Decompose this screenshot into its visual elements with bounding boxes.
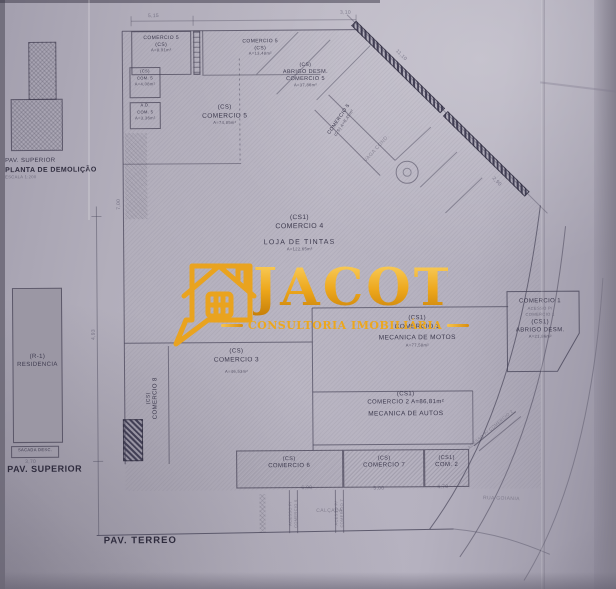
stair-strip <box>193 31 200 75</box>
label-comercio-1-abrigo: COMERCIO 1 ACESSO P/ COMERCIO 1 (CS1) AB… <box>508 298 572 341</box>
label-com5-small-1: (CS) COM. 5 A=4,08m² <box>129 69 160 89</box>
dim-top-right: 3,10 <box>340 10 351 16</box>
room-line: COM. 5 <box>132 76 157 82</box>
tagline-right-bar <box>447 324 469 327</box>
label-comercio-2: (CS1) COMERCIO 2 A=86,81m² MECANICA DE A… <box>331 391 481 419</box>
label-comercio-4: (CS1) COMERCIO 4 LOJA DE TINTAS A=122,65… <box>239 214 359 254</box>
label-comercio-5a: COMERCIO 5 (CS) A=8,91m² <box>131 35 191 55</box>
photographed-demolition-plan: PAV. SUPERIOR PLANTA DE DEMOLIÇÃO ESCALA… <box>0 0 616 589</box>
room-line: COMERCIO 7 <box>347 462 421 470</box>
upper-plan-caption: PAV. SUPERIOR PLANTA DE DEMOLIÇÃO ESCALA… <box>5 157 125 181</box>
room-line: COM. 2 <box>425 462 468 470</box>
label-comercio-3: (CS) COMERCIO 3 A=46,53m² <box>198 348 274 376</box>
label-sacada: SACADA DESC. <box>15 448 54 454</box>
label-acesso-comercio-6: ACESSO P/ COMERCIO 6 <box>288 490 299 538</box>
label-comercio-5b: COMERCIO 5 (CS) A=13,48m² <box>210 38 310 58</box>
room-line: LOJA DE TINTAS <box>240 237 360 247</box>
jacot-tagline-row: CONSULTORIA IMOBILIÁRIA <box>221 319 469 332</box>
dark-stair-block <box>123 419 143 461</box>
dim-walk-a: 6,90 <box>301 485 312 491</box>
dim-left-a: 7,00 <box>116 199 122 210</box>
room-area: A=3,36m² <box>133 116 158 122</box>
label-comercio-6: (CS) COMERCIO 6 <box>239 456 339 472</box>
room-line: COMERCIO 1 <box>514 312 567 318</box>
room-area: A=13,48m² <box>219 51 301 57</box>
room-line: COMERCIO 4 <box>239 222 359 232</box>
room-line: COMERCIO 2 A=86,81m² <box>331 399 481 408</box>
caption-left-pav-superior: PAV. SUPERIOR <box>7 464 82 475</box>
caption-planta-demolicao: PLANTA DE DEMOLIÇÃO <box>5 165 125 175</box>
label-com5-small-2: A.D. COM. 5 A=3,36m² <box>130 103 161 123</box>
label-com-2-small: (CS1) COM. 2 <box>425 455 468 470</box>
room-area: A=21,86m² <box>514 335 567 341</box>
room-line: COMERCIO 3 <box>198 356 274 365</box>
room-line: A.D. <box>132 103 157 109</box>
label-residencia: (R-1) RESIDENCIA <box>12 354 62 370</box>
room-line: ACESSO P/ <box>514 306 567 312</box>
label-comercio-8: (CS) COMERCIO 8 <box>145 353 160 443</box>
room-area: A=77,58m² <box>364 343 471 349</box>
room-area: A=46,53m² <box>205 370 267 376</box>
room-line: MECANICA DE AUTOS <box>331 409 481 418</box>
label-calcada: CALÇADA <box>307 508 351 515</box>
dim-top-left: 5,15 <box>148 13 159 19</box>
room-line: COM. 5 <box>132 110 157 116</box>
room-area: A=37,86m² <box>260 82 350 88</box>
caption-escala: ESCALA 1:200 <box>5 174 103 180</box>
room-line: (CS) <box>132 69 157 75</box>
caption-pav-terreo: PAV. TERREO <box>104 535 177 547</box>
room-area: A=74,85m² <box>194 121 256 127</box>
jacot-tagline-text: CONSULTORIA IMOBILIÁRIA <box>248 319 442 332</box>
label-comercio-5c: (CS) COMERCIO 5 A=74,85m² <box>187 104 263 127</box>
jacot-logo-icon <box>160 252 258 352</box>
room-area: A=8,91m² <box>137 48 186 54</box>
room-area: A=122,65m² <box>250 246 348 252</box>
upper-floor-plan-top-wing <box>28 42 56 100</box>
room-line: COMERCIO 8 <box>152 353 160 443</box>
upper-floor-plan-body <box>11 99 63 151</box>
dim-left-b: 4,93 <box>91 329 97 340</box>
tagline-left-bar <box>221 324 243 327</box>
jacot-brand-text: JACOT <box>253 263 448 319</box>
label-street-name: RUA GOIANIA <box>456 494 546 503</box>
sidewalk-post <box>259 494 265 532</box>
dim-walk-b: 5,00 <box>373 485 384 491</box>
hatched-wall-band <box>125 133 148 219</box>
dim-walk-c: 4,70 <box>437 484 448 490</box>
room-area: A=4,08m² <box>132 82 157 88</box>
room-line: COMERCIO 6 <box>239 463 339 471</box>
label-abrigo-comercio-5: (CS) ABRIGO DESM. COMERCIO 5 A=37,86m² <box>250 62 360 90</box>
label-comercio-7: (CS) COMERCIO 7 <box>347 455 421 470</box>
room-line: COMERCIO 1 <box>508 298 572 306</box>
residencia-line: RESIDENCIA <box>12 362 62 370</box>
